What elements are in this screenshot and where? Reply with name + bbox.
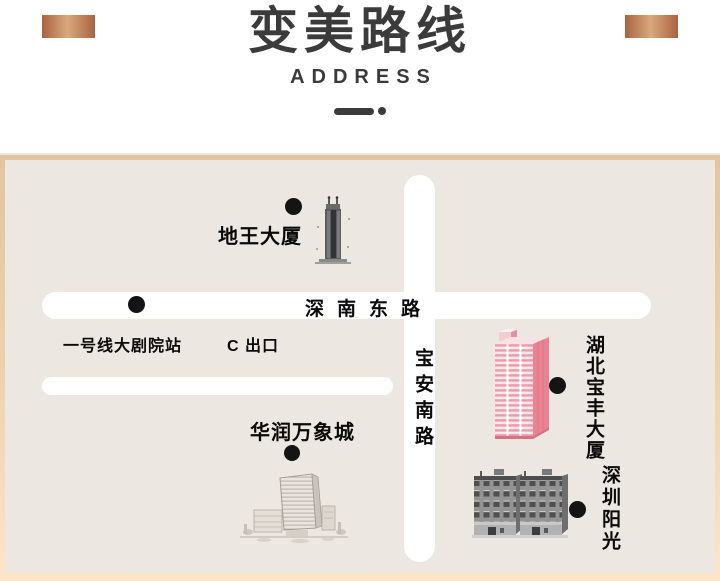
location-dot-sunshine xyxy=(569,501,586,518)
page-header: 变美路线 ADDRESS xyxy=(0,0,720,155)
deco-dot-icon xyxy=(378,107,386,115)
location-dot-mixc xyxy=(284,445,300,461)
title-decoration xyxy=(0,106,720,116)
label-sunshine-building: 深圳阳光 xyxy=(596,465,623,553)
label-exit-c: C 出口 xyxy=(227,332,279,356)
location-dot-baofeng xyxy=(549,377,566,394)
location-dot-diwang xyxy=(285,198,302,215)
page-title: 变美路线 xyxy=(0,0,720,62)
location-dot-station xyxy=(128,296,145,313)
label-diwang-building: 地王大厦 xyxy=(218,220,302,249)
label-metro-station: 一号线大剧院站 xyxy=(63,332,182,356)
label-baofeng-building: 湖北宝丰大厦 xyxy=(580,335,607,461)
baofeng-building-illustration xyxy=(487,328,558,442)
road-label-shennan-east: 深南东路 xyxy=(305,294,433,321)
page-subtitle: ADDRESS xyxy=(0,66,720,89)
label-mixc-mall: 华润万象城 xyxy=(250,416,355,445)
road-label-baoan-south: 宝安南路 xyxy=(409,348,436,452)
mixc-building-illustration xyxy=(238,466,350,554)
road-secondary xyxy=(42,377,393,395)
deco-line xyxy=(334,108,374,115)
sunshine-building-illustration xyxy=(472,467,568,548)
diwang-tower-illustration xyxy=(313,196,353,268)
map-frame: 深南东路 宝安南路 地王大厦 xyxy=(0,155,720,581)
route-map: 深南东路 宝安南路 地王大厦 xyxy=(5,160,715,573)
